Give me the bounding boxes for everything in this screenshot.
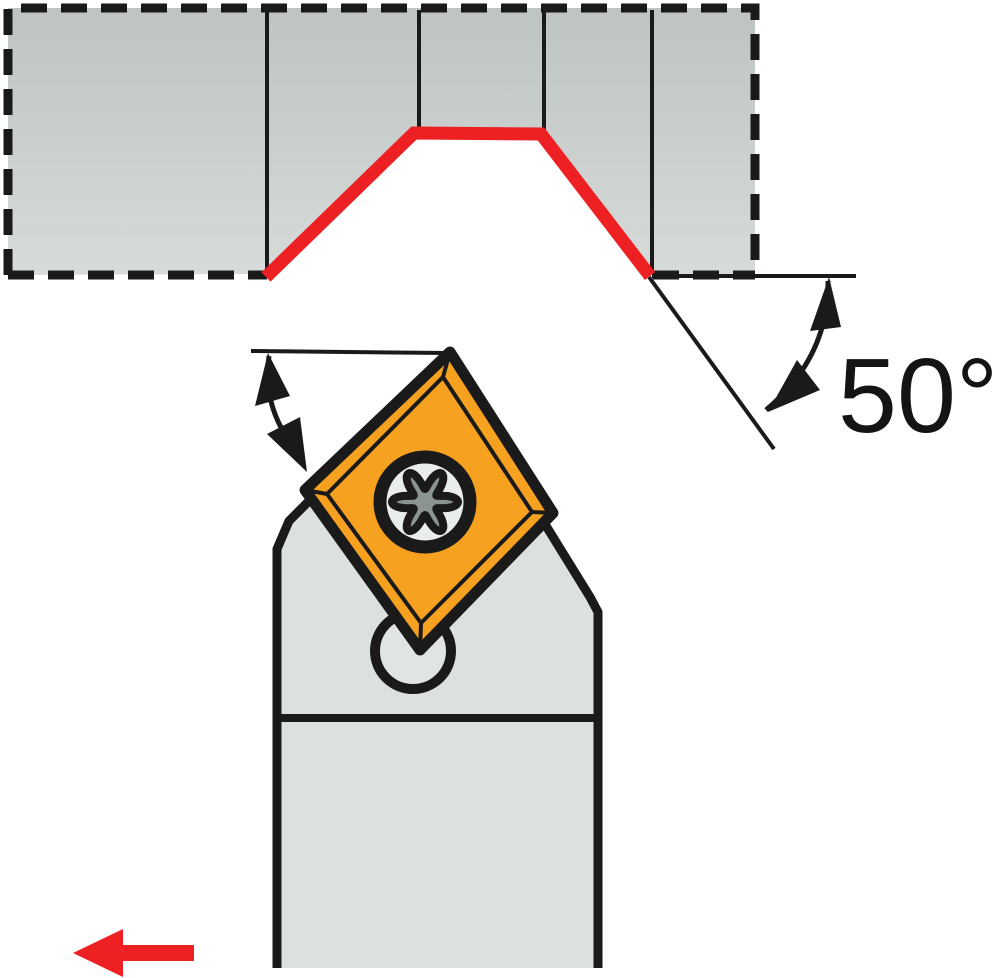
workpiece-body [8,8,755,275]
angle-slope-extension-line [649,277,774,449]
insert-angle-arrowhead-down-icon [267,417,307,472]
entering-angle-arrowhead-up-icon [810,277,841,331]
machining-diagram: 50° [0,0,1000,978]
insert-angle-reference-line [251,351,447,353]
feed-direction-arrow-icon [73,929,194,977]
insert-angle-arrowhead-up-icon [255,353,290,406]
entering-angle-arrowhead-down-icon [768,360,820,412]
entering-angle-label: 50° [838,337,998,455]
diagram-canvas: 50° [0,0,1000,978]
